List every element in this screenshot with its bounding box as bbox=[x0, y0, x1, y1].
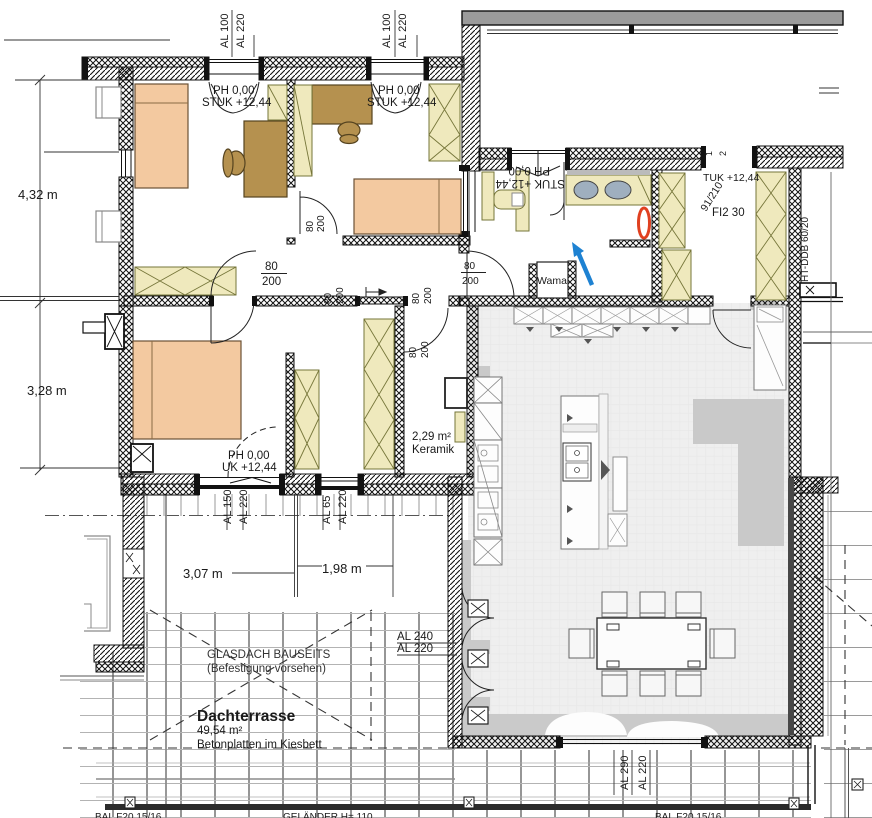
svg-text:Dachterrasse: Dachterrasse bbox=[197, 708, 296, 725]
svg-text:200: 200 bbox=[462, 276, 479, 287]
svg-text:(Befestigung vorsehen): (Befestigung vorsehen) bbox=[207, 663, 326, 675]
svg-text:2,29 m²: 2,29 m² bbox=[412, 431, 451, 443]
svg-text:AL 220: AL 220 bbox=[238, 490, 250, 524]
svg-text:BAL F20 15/16: BAL F20 15/16 bbox=[655, 812, 722, 818]
svg-text:STUK +12,44: STUK +12,44 bbox=[495, 177, 565, 189]
svg-text:200: 200 bbox=[335, 287, 346, 304]
svg-text:80: 80 bbox=[464, 261, 476, 272]
svg-text:AL 150: AL 150 bbox=[222, 490, 234, 524]
svg-text:AL 220: AL 220 bbox=[397, 14, 409, 48]
svg-text:PH 0,00: PH 0,00 bbox=[508, 164, 550, 176]
svg-text:80: 80 bbox=[408, 346, 419, 358]
svg-text:AL 220: AL 220 bbox=[235, 14, 247, 48]
svg-text:Betonplatten im Kiesbett: Betonplatten im Kiesbett bbox=[197, 739, 322, 751]
svg-text:STUK +12,44: STUK +12,44 bbox=[367, 97, 437, 109]
svg-text:PH 0,00: PH 0,00 bbox=[228, 450, 270, 462]
svg-text:200: 200 bbox=[423, 287, 434, 304]
svg-text:BAL F20 15/16: BAL F20 15/16 bbox=[95, 812, 162, 818]
svg-text:2: 2 bbox=[718, 151, 728, 156]
svg-text:GELÄNDER H= 110: GELÄNDER H= 110 bbox=[283, 811, 373, 818]
svg-text:1,98 m: 1,98 m bbox=[322, 561, 362, 576]
svg-text:PH 0,00: PH 0,00 bbox=[378, 85, 420, 97]
svg-text:AL 220: AL 220 bbox=[397, 643, 433, 655]
svg-text:80: 80 bbox=[305, 220, 316, 232]
svg-text:4,32 m: 4,32 m bbox=[18, 187, 58, 202]
svg-text:UK +12,44: UK +12,44 bbox=[222, 462, 277, 474]
svg-text:AL 220: AL 220 bbox=[337, 490, 349, 524]
svg-text:3,07 m: 3,07 m bbox=[183, 566, 223, 581]
svg-text:GLASDACH BAUSEITS: GLASDACH BAUSEITS bbox=[207, 649, 331, 661]
svg-text:AL 290: AL 290 bbox=[619, 756, 631, 790]
svg-text:AL 65: AL 65 bbox=[321, 496, 333, 524]
svg-text:PH 0,00: PH 0,00 bbox=[213, 85, 255, 97]
svg-text:80: 80 bbox=[411, 292, 422, 304]
svg-text:AL 100: AL 100 bbox=[381, 14, 393, 48]
svg-text:Wama: Wama bbox=[537, 275, 567, 287]
svg-text:49,54 m²: 49,54 m² bbox=[197, 725, 243, 737]
svg-text:AL 240: AL 240 bbox=[397, 631, 433, 643]
svg-text:3,28 m: 3,28 m bbox=[27, 383, 67, 398]
svg-text:200: 200 bbox=[420, 341, 431, 358]
svg-text:AL 220: AL 220 bbox=[637, 756, 649, 790]
svg-text:AL 100: AL 100 bbox=[219, 14, 231, 48]
svg-text:80: 80 bbox=[323, 292, 334, 304]
svg-text:80: 80 bbox=[265, 261, 278, 273]
svg-text:200: 200 bbox=[262, 276, 281, 288]
svg-text:FI2 30: FI2 30 bbox=[712, 207, 745, 219]
svg-text:TUK +12,44: TUK +12,44 bbox=[703, 172, 759, 184]
svg-text:200: 200 bbox=[316, 215, 327, 232]
svg-text:STUK +12,44: STUK +12,44 bbox=[202, 97, 272, 109]
svg-text:HT-DDB 60/20: HT-DDB 60/20 bbox=[800, 217, 811, 282]
svg-text:1: 1 bbox=[704, 151, 714, 156]
svg-text:Keramik: Keramik bbox=[412, 444, 454, 456]
